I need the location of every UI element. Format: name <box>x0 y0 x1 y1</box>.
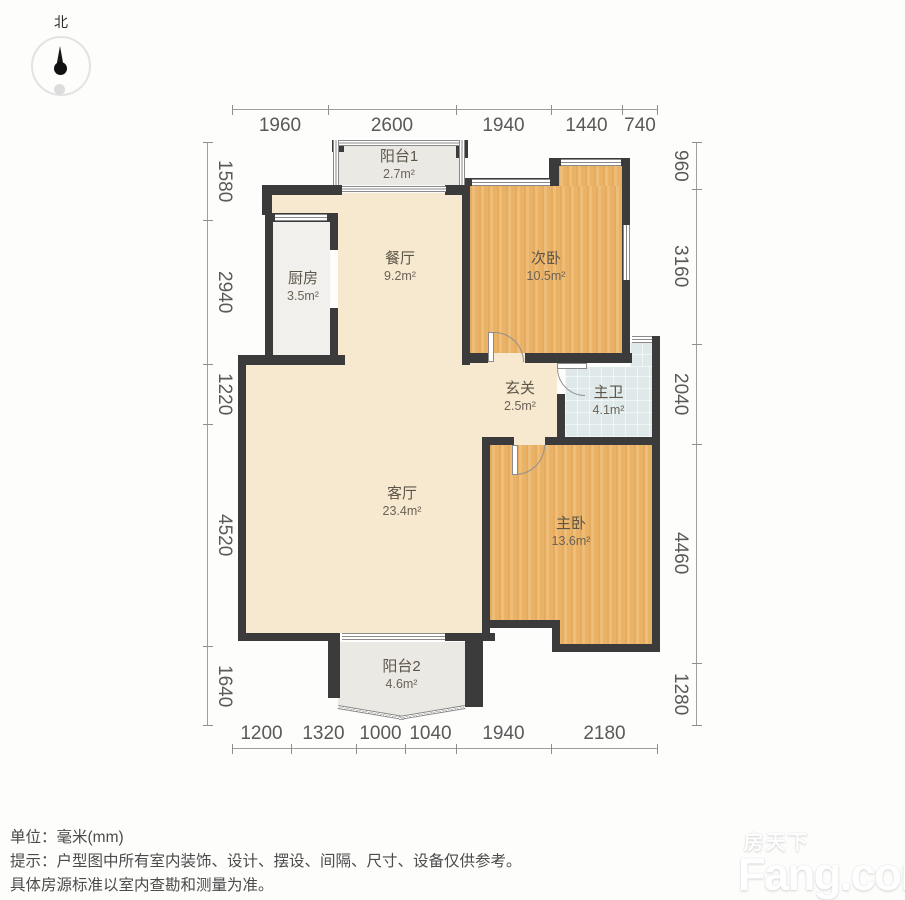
dimension-rail-top: 1960 2600 1940 1440 740 <box>232 109 658 110</box>
fang-watermark: 房天下 Fang.com <box>738 826 905 894</box>
dim-label: 3160 <box>667 189 693 344</box>
room-label-master-bedroom: 主卧 13.6m² <box>490 515 652 549</box>
room-dining-floor <box>270 195 338 213</box>
tick <box>692 189 702 190</box>
room-area: 9.2m² <box>338 269 462 285</box>
footer-note: 单位：毫米(mm) 提示：户型图中所有室内装饰、设计、摆设、间隔、尺寸、设备仅供… <box>10 826 522 898</box>
watermark-brand-en: Fang.com <box>738 855 905 894</box>
tick <box>657 744 658 754</box>
tip-line: 提示：户型图中所有室内装饰、设计、摆设、间隔、尺寸、设备仅供参考。 <box>10 850 522 874</box>
room-name: 玄关 <box>472 380 568 399</box>
tick <box>291 744 292 754</box>
room-name: 主卫 <box>565 384 652 403</box>
room-label-kitchen: 厨房 3.5m² <box>273 270 333 304</box>
room-area: 2.7m² <box>335 167 463 183</box>
floorplan-page: 北 1960 2600 1940 1440 740 1200 1320 1000… <box>0 0 905 900</box>
sliding-door <box>342 633 445 640</box>
wall <box>265 213 273 365</box>
room-label-second-bedroom: 次卧 10.5m² <box>470 250 622 284</box>
dim-label: 1440 <box>551 115 622 137</box>
tick <box>356 744 357 754</box>
dim-label: 1280 <box>667 663 693 726</box>
window <box>472 179 550 186</box>
room-area: 13.6m² <box>490 534 652 550</box>
wall <box>262 185 342 195</box>
dim-label: 1960 <box>232 115 328 137</box>
wall <box>330 222 338 250</box>
room-area: 3.5m² <box>273 289 333 305</box>
tick <box>232 105 233 115</box>
wall <box>462 353 488 363</box>
compass-pivot <box>54 62 67 75</box>
dim-label: 960 <box>667 142 693 189</box>
room-name: 餐厅 <box>338 250 462 269</box>
tick <box>692 142 702 143</box>
room-area: 23.4m² <box>292 504 512 520</box>
compass-north-label: 北 <box>28 12 94 32</box>
wall <box>462 178 470 365</box>
wall <box>482 437 490 641</box>
wall <box>652 445 660 652</box>
wall <box>525 353 632 363</box>
window <box>623 225 630 280</box>
wall <box>652 336 660 447</box>
dim-label: 4460 <box>667 444 693 663</box>
tick <box>551 105 552 115</box>
room-label-master-bath: 主卫 4.1m² <box>565 384 652 418</box>
dim-label: 740 <box>622 115 658 137</box>
compass: 北 <box>28 12 94 96</box>
room-name: 阳台1 <box>335 148 463 167</box>
floorplan: 阳台1 2.7m² 厨房 3.5m² 餐厅 9.2m² 次卧 10.5m² 玄关… <box>232 140 660 730</box>
wall <box>238 355 345 365</box>
room-area: 2.5m² <box>472 399 568 415</box>
room-name: 厨房 <box>273 270 333 289</box>
tick <box>622 105 623 115</box>
window <box>275 214 327 221</box>
window <box>632 336 652 343</box>
room-name: 阳台2 <box>338 658 465 677</box>
tick <box>692 444 702 445</box>
room-name: 客厅 <box>292 485 512 504</box>
window <box>561 159 621 166</box>
tick <box>456 105 457 115</box>
compass-tail <box>54 84 65 95</box>
wall <box>238 355 246 641</box>
wall <box>465 641 483 707</box>
tick <box>551 744 552 754</box>
room-label-entry: 玄关 2.5m² <box>472 380 568 414</box>
unit-line: 单位：毫米(mm) <box>10 826 522 850</box>
room-area: 4.6m² <box>338 677 465 693</box>
tick <box>657 105 658 115</box>
wall <box>552 644 660 652</box>
room-area: 10.5m² <box>470 269 622 285</box>
room-label-dining: 餐厅 9.2m² <box>338 250 462 284</box>
sliding-door <box>342 186 446 192</box>
dim-label: 2600 <box>328 115 456 137</box>
room-name: 主卧 <box>490 515 652 534</box>
tick <box>456 744 457 754</box>
wall <box>482 620 560 628</box>
tick <box>692 663 702 664</box>
room-area: 4.1m² <box>565 403 652 419</box>
window <box>333 140 465 146</box>
wall <box>262 185 272 215</box>
wall <box>545 437 660 445</box>
dim-label: 2040 <box>667 344 693 444</box>
dimension-rail-right: 960 3160 2040 4460 1280 <box>696 142 697 726</box>
dim-label: 1940 <box>456 115 551 137</box>
room-label-living: 客厅 23.4m² <box>292 485 512 519</box>
dimension-rail-bottom: 1200 1320 1000 1040 1940 2180 <box>232 748 658 749</box>
room-label-balcony1: 阳台1 2.7m² <box>335 148 463 182</box>
tick <box>405 744 406 754</box>
room-label-balcony2: 阳台2 4.6m² <box>338 658 465 692</box>
tick <box>328 105 329 115</box>
tick <box>692 725 702 726</box>
tick <box>692 344 702 345</box>
room-master-bath-floor <box>630 342 652 367</box>
wall <box>238 633 340 641</box>
room-name: 次卧 <box>470 250 622 269</box>
tick <box>232 744 233 754</box>
tip-line: 具体房源标准以室内查勘和测量为准。 <box>10 874 522 898</box>
dimension-rail-left: 1580 2940 1220 4520 1640 <box>207 142 208 726</box>
wall <box>330 308 338 355</box>
